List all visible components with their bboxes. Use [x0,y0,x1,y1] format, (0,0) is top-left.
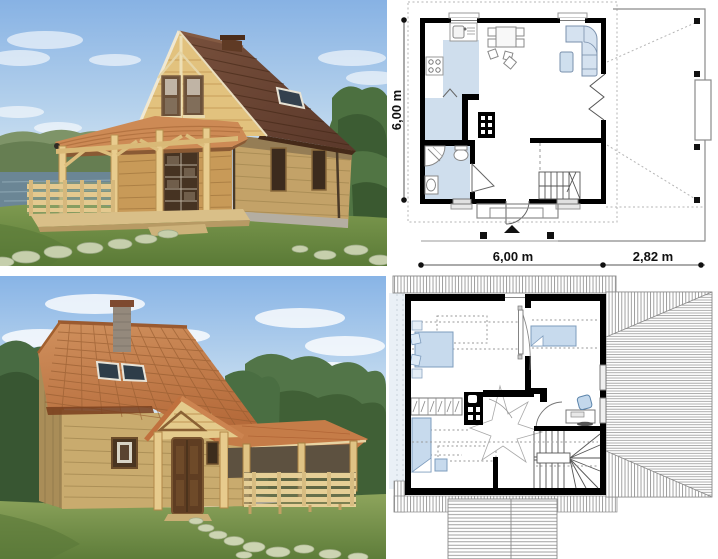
svg-text:6,00 m: 6,00 m [493,249,533,264]
svg-text:6,00 m: 6,00 m [389,90,404,130]
svg-text:2,82 m: 2,82 m [633,249,673,264]
